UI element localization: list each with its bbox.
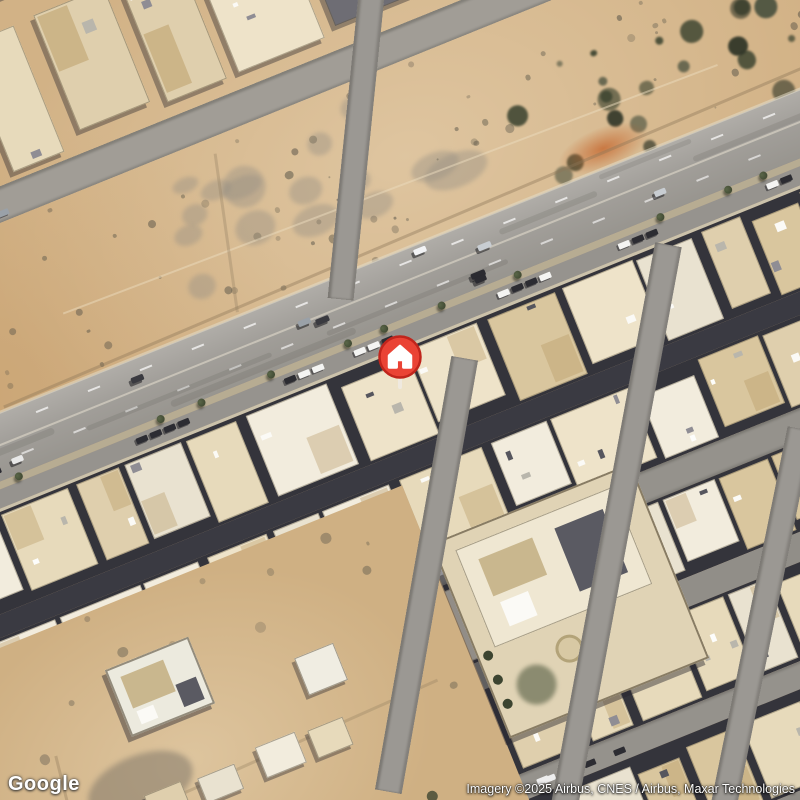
map-feature <box>143 24 191 92</box>
map-feature <box>365 391 374 398</box>
map-marker-home[interactable] <box>377 334 423 396</box>
map-feature <box>127 516 136 526</box>
map-feature <box>661 18 667 24</box>
map-feature <box>775 221 787 233</box>
map-feature <box>419 142 492 198</box>
map-feature <box>4 370 9 375</box>
map-feature <box>175 677 204 707</box>
map-feature <box>626 33 637 44</box>
map-feature <box>789 21 799 31</box>
map-feature <box>235 138 240 143</box>
map-feature <box>577 459 585 466</box>
imagery-attribution: Imagery ©2025 Airbus, CNES / Airbus, Max… <box>466 782 795 796</box>
map-feature <box>120 660 175 709</box>
map-feature <box>653 78 657 82</box>
map-feature <box>68 699 76 707</box>
map-feature <box>254 620 268 634</box>
map-feature <box>47 207 53 213</box>
map-feature <box>625 314 637 324</box>
map-feature <box>710 633 718 643</box>
map-feature <box>796 9 800 20</box>
map-feature <box>31 149 43 159</box>
map-feature <box>284 170 295 181</box>
map-feature <box>730 68 740 78</box>
map-feature <box>521 472 531 480</box>
map-feature <box>501 697 514 710</box>
map-feature <box>198 577 206 585</box>
map-feature <box>541 334 583 382</box>
map-feature <box>505 450 513 461</box>
map-feature <box>689 434 697 442</box>
map-feature <box>136 705 158 725</box>
map-feature <box>407 60 415 68</box>
map-feature <box>593 101 598 106</box>
map-feature <box>184 270 219 304</box>
map-feature <box>310 240 315 245</box>
map-feature <box>665 493 697 529</box>
map-feature <box>750 0 780 22</box>
map-feature <box>652 22 659 29</box>
map-feature <box>405 217 409 221</box>
map-feature <box>555 60 563 68</box>
map-feature <box>466 94 471 99</box>
map-feature <box>116 645 130 659</box>
map-feature <box>361 564 373 576</box>
map-feature <box>676 59 692 75</box>
map-feature <box>170 173 201 197</box>
map-feature <box>796 727 800 736</box>
map-feature <box>129 462 141 473</box>
map-feature <box>100 470 131 511</box>
map-feature <box>613 394 621 404</box>
map-feature <box>598 449 605 459</box>
map-feature <box>246 13 256 20</box>
google-logo[interactable]: Google <box>8 773 80 796</box>
map-feature <box>60 516 68 525</box>
map-feature <box>141 492 177 534</box>
map-feature <box>524 74 532 82</box>
map-feature <box>319 532 333 546</box>
map-feature <box>229 204 281 252</box>
map-feature <box>744 371 781 411</box>
map-feature <box>771 260 782 272</box>
map-feature <box>41 255 48 262</box>
map-feature <box>714 241 726 253</box>
map-feature <box>491 673 504 686</box>
map-feature <box>699 489 708 496</box>
map-feature <box>294 643 348 696</box>
map-feature <box>448 680 458 690</box>
map-feature <box>511 659 563 711</box>
map-feature <box>391 402 404 414</box>
map-feature <box>390 224 400 234</box>
map-feature <box>589 49 597 57</box>
map-feature <box>597 75 609 87</box>
map-feature <box>306 425 353 474</box>
map-feature <box>290 148 299 157</box>
map-feature <box>454 127 459 132</box>
map-feature <box>425 789 440 800</box>
map-feature <box>727 0 755 22</box>
map-feature <box>212 450 219 459</box>
map-feature <box>261 432 273 441</box>
satellite-map-viewport[interactable]: Google Imagery ©2025 Airbus, CNES / Airb… <box>0 0 800 800</box>
map-feature <box>526 303 536 311</box>
map-feature <box>147 219 157 229</box>
map-feature <box>112 233 117 238</box>
map-feature <box>103 340 113 350</box>
map-feature <box>686 427 694 434</box>
map-feature <box>33 558 40 565</box>
map-feature <box>730 639 740 649</box>
map-feature <box>38 753 52 767</box>
map-feature <box>81 19 96 34</box>
map-feature <box>639 1 644 6</box>
map-feature <box>4 505 44 550</box>
map-feature <box>481 118 490 127</box>
map-feature <box>33 0 150 130</box>
map-feature <box>83 615 91 623</box>
map-feature <box>307 717 353 759</box>
map-feature <box>8 327 17 336</box>
home-marker-graphic <box>377 334 423 396</box>
map-feature <box>274 235 281 242</box>
map-feature <box>328 176 331 179</box>
map-feature <box>482 649 495 662</box>
map-feature <box>540 51 546 57</box>
map-feature <box>141 0 153 9</box>
map-feature <box>616 14 623 21</box>
map-feature <box>534 733 541 742</box>
map-feature <box>127 0 140 1</box>
map-feature <box>6 382 14 390</box>
map-feature <box>677 17 706 46</box>
map-feature <box>266 567 276 577</box>
map-feature <box>232 2 239 9</box>
map-feature <box>37 5 89 72</box>
map-feature <box>180 194 185 199</box>
map-feature <box>393 216 397 220</box>
map-feature <box>304 128 336 159</box>
map-feature <box>274 206 281 213</box>
map-feature <box>654 36 664 46</box>
map-feature <box>787 34 796 43</box>
map-feature <box>791 353 800 363</box>
map-feature <box>365 541 370 546</box>
map-feature <box>733 494 742 502</box>
map-feature <box>710 379 716 386</box>
map-feature <box>733 351 742 359</box>
map-feature <box>86 329 91 334</box>
map-feature <box>654 31 658 35</box>
